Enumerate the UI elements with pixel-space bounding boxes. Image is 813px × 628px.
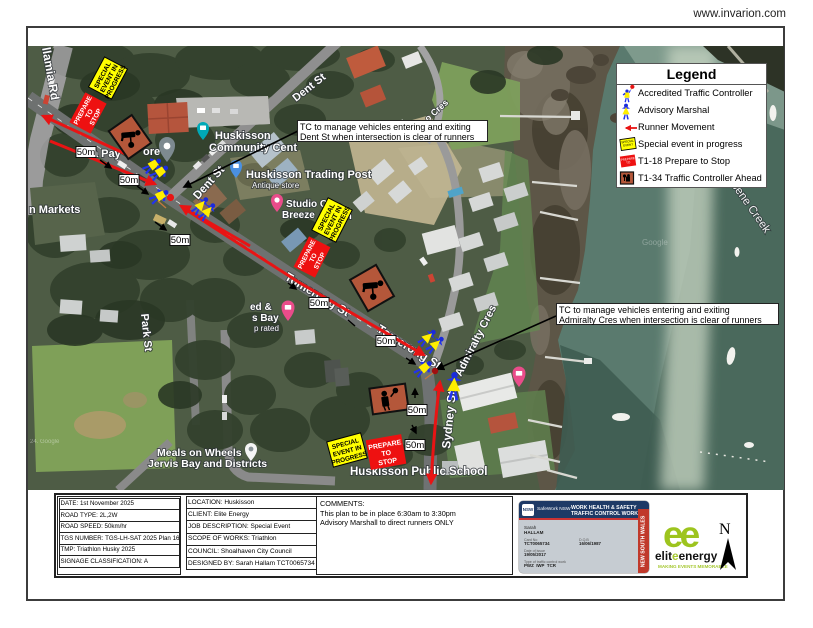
svg-text:50m: 50m [406, 440, 425, 451]
svg-text:50m: 50m [77, 147, 96, 158]
svg-text:n Markets: n Markets [29, 204, 80, 216]
svg-text:ed &: ed & [250, 302, 272, 313]
svg-text:24. Google: 24. Google [30, 439, 60, 445]
svg-text:eliteenergy: eliteenergy [655, 549, 718, 563]
svg-text:50m: 50m [310, 298, 329, 309]
svg-text:Breeze: Breeze [282, 210, 315, 221]
svg-text:50m: 50m [171, 235, 190, 246]
svg-text:Jervis Bay and Districts: Jervis Bay and Districts [148, 458, 267, 470]
svg-text:50m: 50m [408, 405, 427, 416]
svg-text:Antique store: Antique store [252, 181, 300, 190]
svg-text:50m: 50m [120, 175, 139, 186]
svg-text:Studio O: Studio O [286, 199, 328, 210]
svg-text:50m: 50m [377, 336, 396, 347]
svg-text:p rated: p rated [254, 324, 279, 333]
svg-text:Huskisson: Huskisson [215, 130, 271, 142]
svg-text:Google: Google [642, 238, 668, 247]
svg-text:s Bay: s Bay [252, 313, 279, 324]
svg-text:Huskisson Trading Post: Huskisson Trading Post [246, 169, 372, 181]
